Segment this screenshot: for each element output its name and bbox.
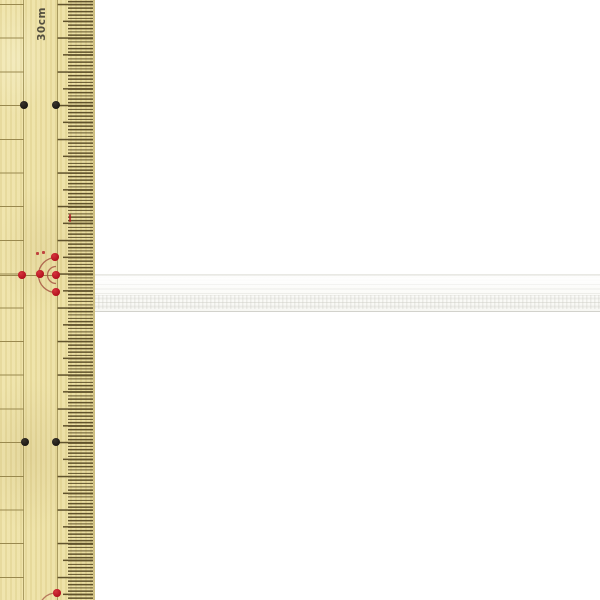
red-speck-marker (36, 252, 39, 255)
black-dot-marker (52, 438, 60, 446)
wooden-ruler: 30cm (0, 0, 95, 600)
red-dot-marker (52, 288, 60, 296)
ruler-curve-marks (0, 0, 95, 600)
red-dot-marker (36, 270, 44, 278)
red-speck-marker (42, 251, 45, 254)
photo-stage: 30cm (0, 0, 600, 600)
tape-weave-texture (94, 295, 600, 309)
elastic-tape (94, 274, 600, 312)
red-dot-marker (51, 253, 59, 261)
black-dot-marker (20, 101, 28, 109)
black-dot-marker (21, 438, 29, 446)
red-dot-marker (18, 271, 26, 279)
red-dot-marker (53, 589, 61, 597)
black-dot-marker (52, 101, 60, 109)
tape-sheen (94, 278, 600, 288)
red-speck-marker (69, 214, 71, 222)
red-dot-marker (52, 271, 60, 279)
